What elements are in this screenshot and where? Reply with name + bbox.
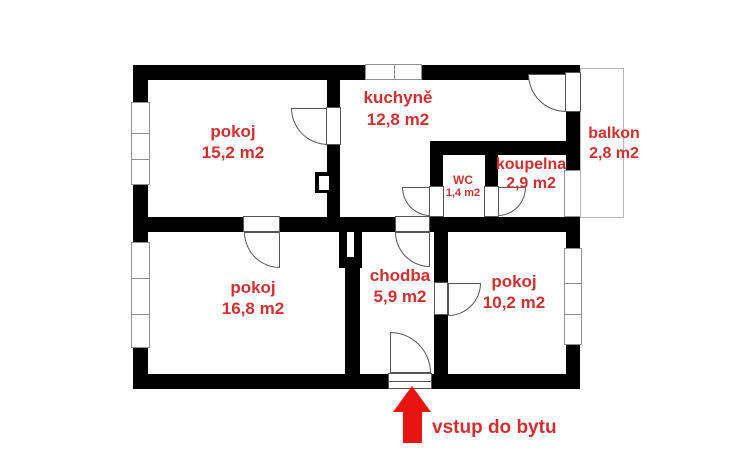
room-label-pokoj-10: pokoj 10,2 m2: [483, 271, 545, 313]
room-label-chodba: chodba 5,9 m2: [370, 265, 430, 307]
door-arc-chodba-pokoj3: [448, 283, 481, 316]
chimney-slot: [319, 176, 329, 190]
room-area: 2,9 m2: [496, 174, 566, 193]
room-name: WC: [446, 174, 480, 187]
room-name: chodba: [370, 265, 430, 286]
door-arc-kuchyne-chodba: [395, 232, 430, 267]
door-arc-pokoj1-kuchyne: [291, 108, 328, 145]
window-left-pokoj2: [131, 242, 150, 348]
entrance-label: vstup do bytu: [432, 417, 557, 439]
wall-middle-horizontal: [148, 217, 566, 232]
window-pane-divider: [394, 65, 395, 79]
door-leaf-balkon: [565, 72, 581, 112]
door-leaf-wc: [429, 186, 444, 217]
window-top-kuchyne: [365, 64, 422, 80]
room-name: pokoj: [202, 121, 264, 142]
window-right-pokoj3: [564, 248, 582, 345]
room-label-koupelna: koupelna 2,9 m2: [496, 155, 566, 193]
room-name: pokoj: [483, 271, 545, 292]
room-label-balkon: balkon 2,8 m2: [588, 124, 640, 164]
window-pane-divider: [132, 278, 149, 279]
door-arc-entrance: [390, 332, 431, 373]
wall-bottom: [133, 374, 580, 389]
door-leaf-pokoj1-kuchyne: [326, 107, 341, 145]
room-area: 1,4 m2: [446, 187, 480, 200]
room-name: koupelna: [496, 155, 566, 174]
door-arc-wc: [402, 187, 430, 216]
window-pane-divider: [565, 283, 581, 284]
entrance-arrow-shaft: [403, 410, 422, 443]
door-arc-pokoj1-pokoj2: [244, 232, 280, 268]
room-name: pokoj: [222, 277, 284, 298]
threshold-divider: [389, 381, 431, 382]
floorplan-canvas: pokoj 15,2 m2 kuchyně 12,8 m2 balkon 2,8…: [0, 0, 753, 468]
door-leaf-pokoj1-pokoj2: [243, 216, 280, 232]
entrance-arrow-icon: [393, 386, 431, 412]
window-pane-divider: [132, 314, 149, 315]
shaft-chodba-slot: [347, 232, 354, 257]
room-name: balkon: [588, 124, 640, 144]
room-area: 16,8 m2: [222, 298, 284, 319]
wall-top: [133, 65, 580, 80]
window-left-pokoj1: [131, 102, 150, 185]
room-label-pokoj-15: pokoj 15,2 m2: [202, 121, 264, 163]
room-label-wc: WC 1,4 m2: [446, 174, 480, 200]
room-area: 15,2 m2: [202, 142, 264, 163]
room-area: 2,8 m2: [588, 144, 640, 164]
door-arc-balkon: [528, 74, 566, 112]
room-label-kuchyne: kuchyně 12,8 m2: [364, 87, 433, 131]
room-area: 10,2 m2: [483, 292, 545, 313]
room-area: 5,9 m2: [370, 286, 430, 307]
door-leaf-kuchyne-chodba: [395, 216, 430, 232]
window-pane-divider: [565, 314, 581, 315]
wall-pokoj1-kuchyne: [327, 80, 340, 217]
room-label-pokoj-16: pokoj 16,8 m2: [222, 277, 284, 319]
room-name: kuchyně: [364, 87, 433, 109]
door-leaf-chodba-pokoj3: [434, 282, 448, 315]
window-pane-divider: [132, 159, 149, 160]
window-pane-divider: [132, 133, 149, 134]
wall-wc-koupelna-top: [430, 141, 566, 155]
room-area: 12,8 m2: [364, 109, 433, 131]
